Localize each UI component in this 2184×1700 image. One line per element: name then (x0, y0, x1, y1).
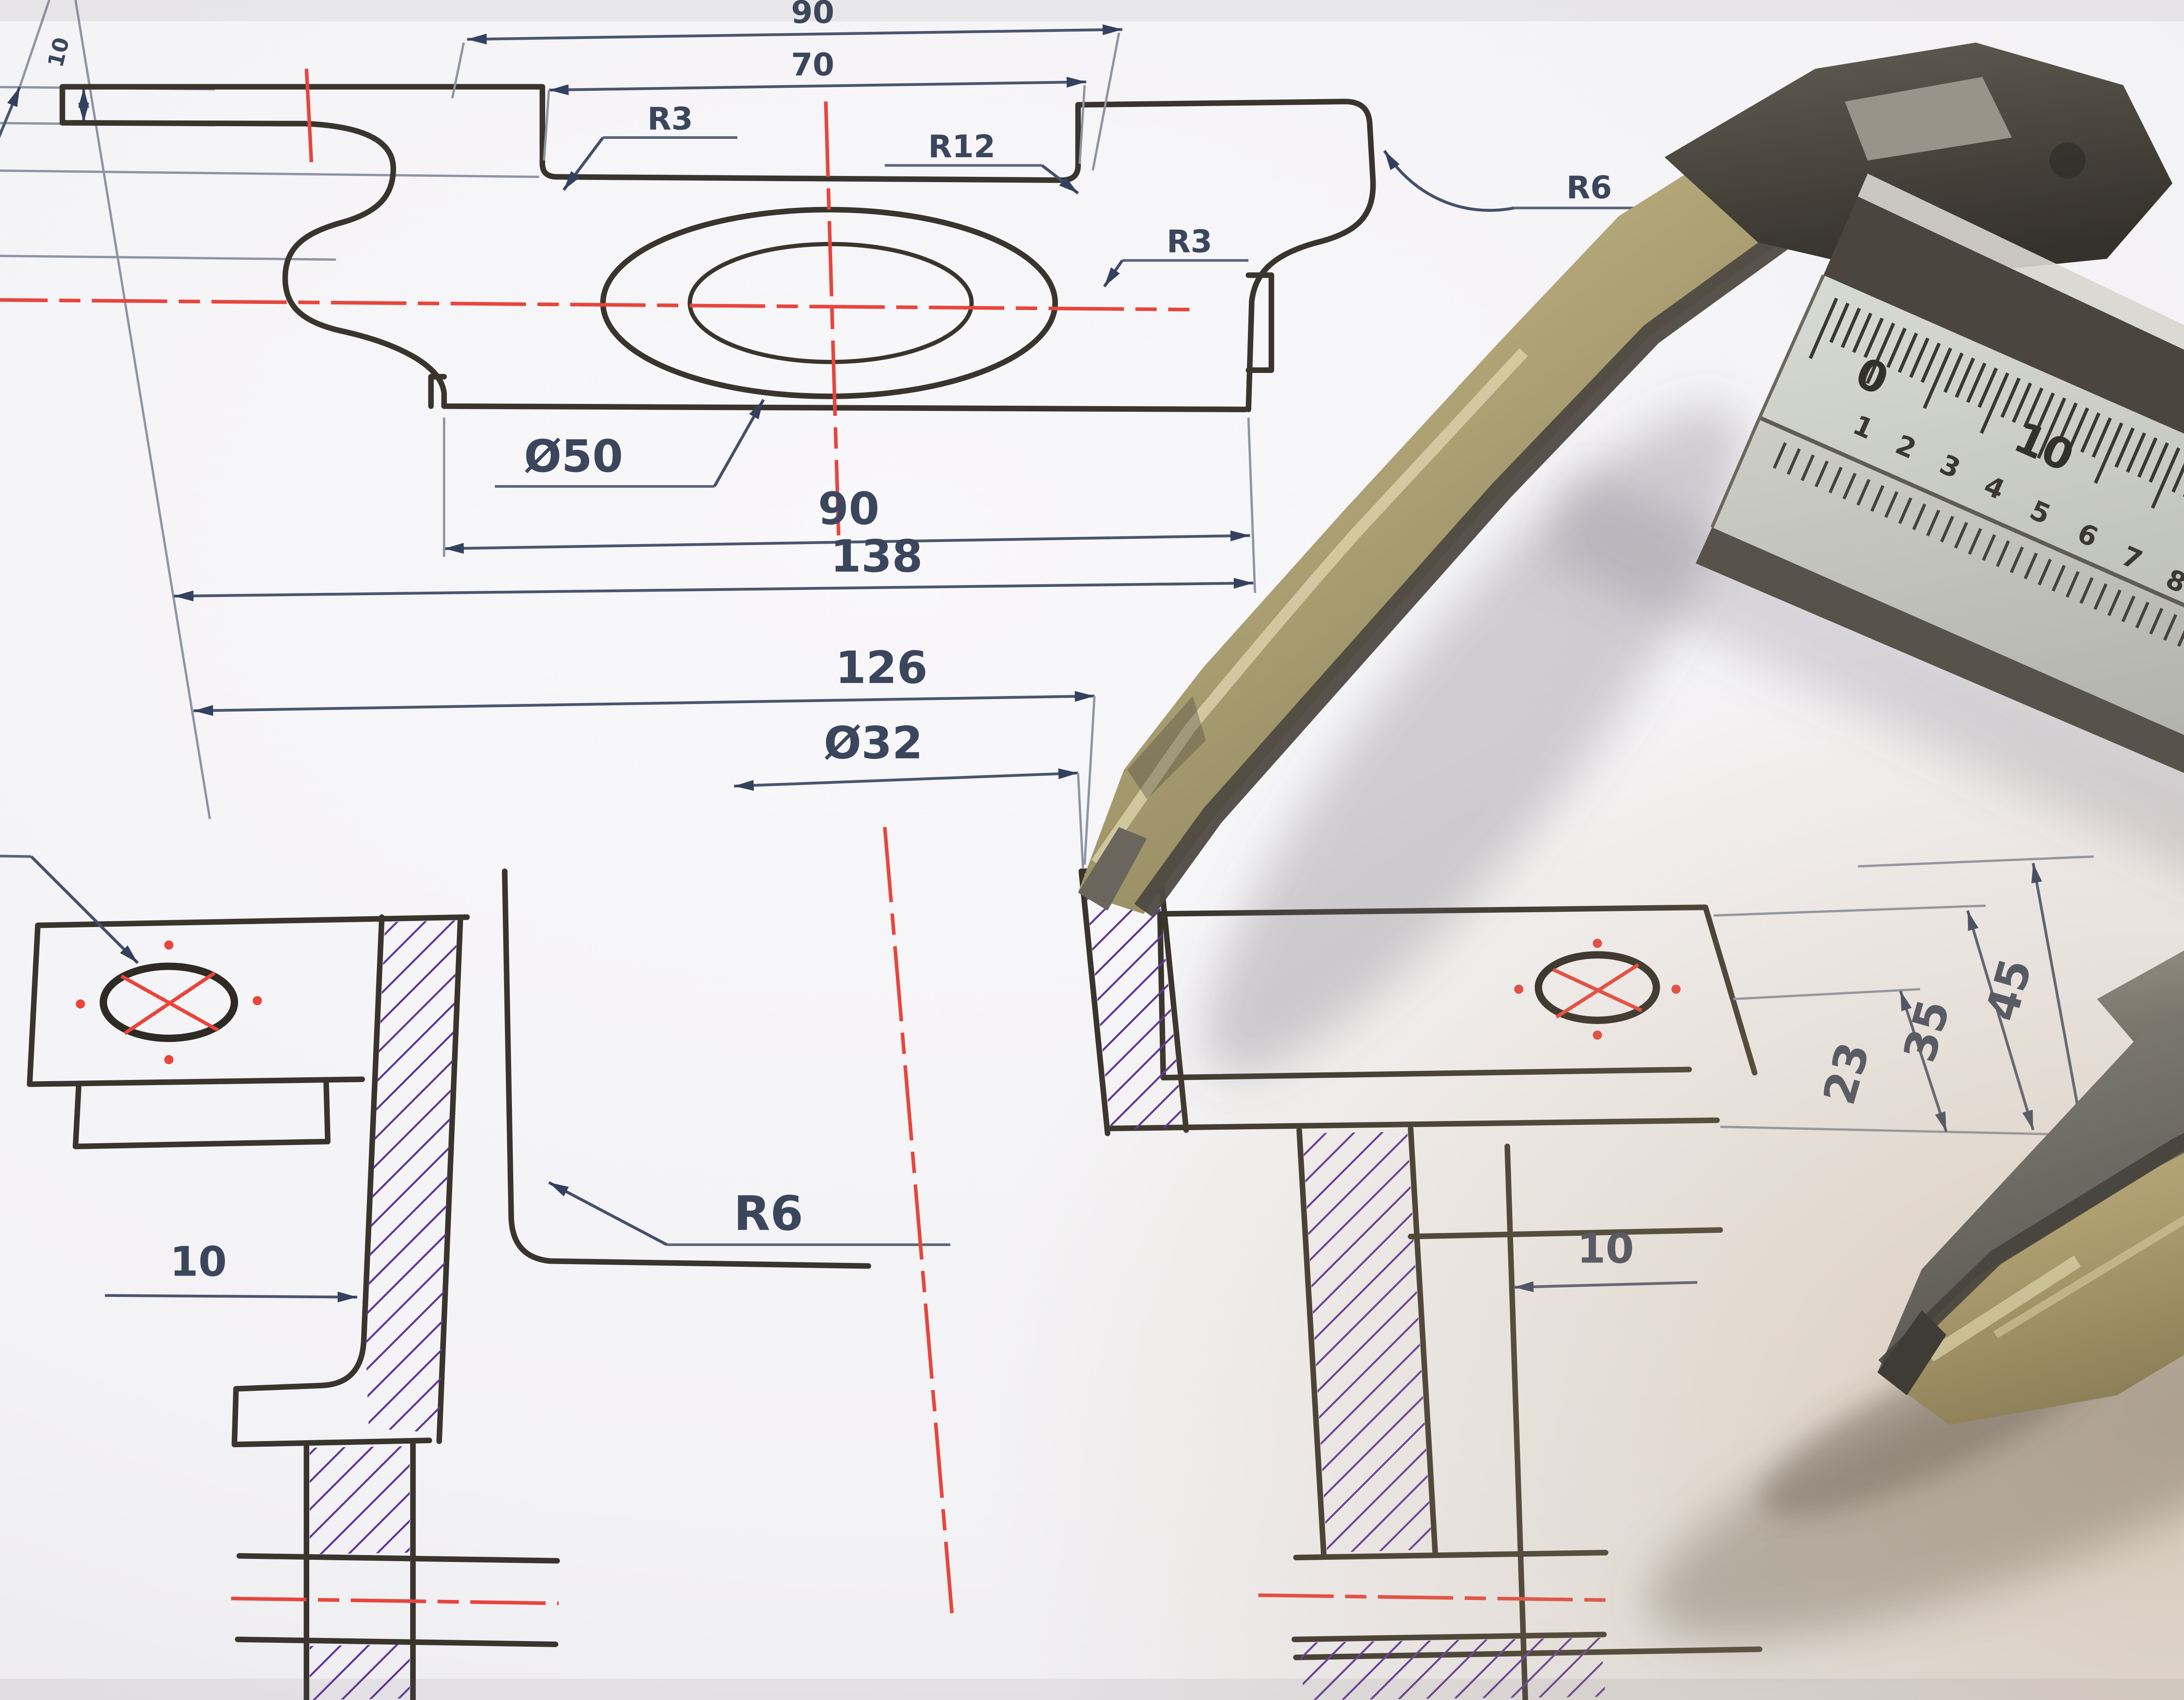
head-screw (2049, 142, 2086, 179)
scene: 40 25 10 90 70 R3 (0, 0, 2184, 1700)
